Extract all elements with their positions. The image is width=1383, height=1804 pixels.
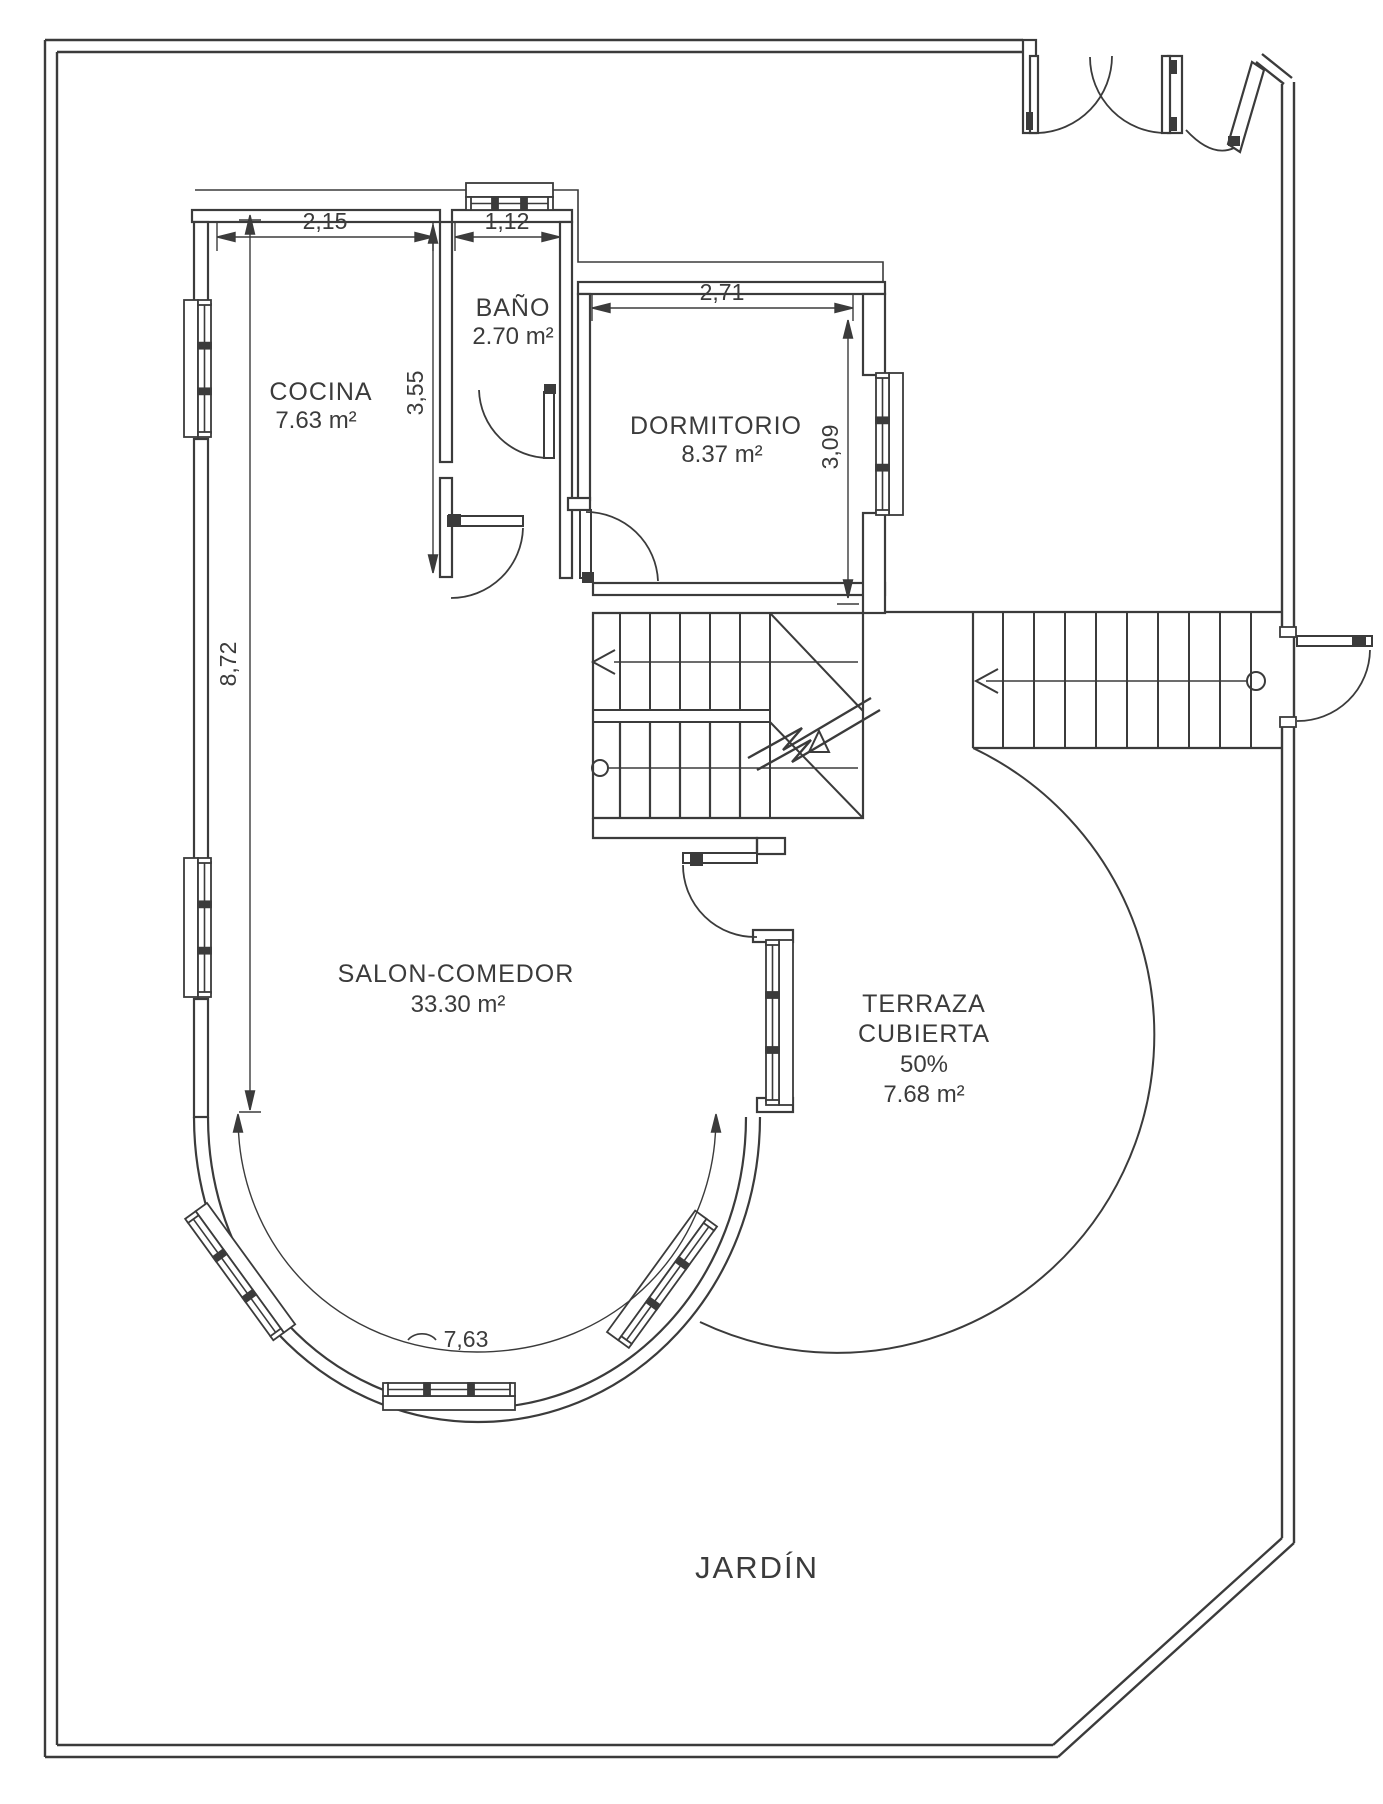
- window-bano-north: [466, 183, 553, 210]
- label-salon: SALON-COMEDOR: [338, 960, 575, 988]
- window-bay-center: [383, 1383, 515, 1410]
- exterior-stair-circle: [1247, 672, 1265, 690]
- dormitorio-door-swing: [586, 512, 658, 581]
- wall-dorm-east-2: [863, 513, 885, 613]
- label-cocina-area: 7.63 m²: [275, 407, 356, 434]
- floor-plan-page: COCINA 7.63 m² BAÑO 2.70 m² DORMITORIO 8…: [0, 0, 1383, 1804]
- stair-break-line-2: [757, 710, 880, 770]
- terraza-door-swing: [683, 865, 757, 937]
- bano-door-swing: [479, 390, 549, 458]
- wall-hall-step: [593, 818, 757, 852]
- wall-west-2: [194, 439, 208, 860]
- wall-jamb-terraza-door: [757, 838, 785, 854]
- window-dormitorio-east: [876, 373, 903, 515]
- dim-cocina-depth: 3,55: [402, 371, 428, 416]
- window-salon-east: [766, 940, 793, 1105]
- exterior-stair: [885, 612, 1282, 748]
- dormitorio-door-leaf: [580, 510, 591, 578]
- label-bano-area: 2.70 m²: [472, 323, 553, 350]
- hall-door-swing: [451, 528, 523, 598]
- boundary-door-swing: [1297, 650, 1370, 721]
- floor-plan-canvas: COCINA 7.63 m² BAÑO 2.70 m² DORMITORIO 8…: [0, 0, 1383, 1804]
- bano-door-leaf: [544, 392, 554, 458]
- wall-dorm-east-1: [863, 294, 885, 375]
- dim-cocina-width: 2,15: [303, 208, 348, 234]
- dim-salon-depth: 8,72: [215, 642, 241, 687]
- stair-direction-arrowhead: [593, 650, 615, 674]
- window-salon-west: [184, 858, 211, 997]
- label-salon-area: 33.30 m²: [411, 991, 506, 1018]
- label-dormitorio-area: 8.37 m²: [681, 441, 762, 468]
- plot-boundary: [45, 40, 1296, 1757]
- wall-cocina-east-1: [440, 222, 452, 462]
- dim-bano-width: 1,12: [485, 208, 530, 234]
- label-dormitorio: DORMITORIO: [630, 412, 802, 440]
- label-bano: BAÑO: [476, 293, 551, 322]
- windows: [184, 183, 903, 1410]
- dim-dormitorio-depth: 3,09: [817, 425, 843, 470]
- gate-swing-left: [1038, 56, 1112, 133]
- entry-gate: [1023, 40, 1264, 152]
- wall-west-3: [194, 999, 208, 1117]
- label-terraza-3: 50%: [900, 1051, 948, 1078]
- wall-cocina-east-2: [440, 478, 452, 577]
- dim-bay-arc: 7,63: [444, 1326, 489, 1352]
- wall-dorm-south: [593, 583, 885, 595]
- wall-dorm-west: [578, 294, 590, 500]
- interior-stair: [592, 613, 880, 818]
- label-cocina: COCINA: [269, 378, 372, 406]
- label-jardin: JARDÍN: [695, 1550, 819, 1585]
- gate-swing-side: [1186, 130, 1234, 151]
- stair-start-circle: [592, 760, 608, 776]
- dim-dormitorio-width: 2,71: [700, 279, 745, 305]
- label-terraza-2: CUBIERTA: [858, 1020, 990, 1048]
- wall-bano-east: [560, 222, 572, 578]
- wall-step-cap: [568, 498, 590, 510]
- arc-length-symbol: [408, 1334, 436, 1340]
- window-bay-left: [185, 1203, 295, 1340]
- window-cocina-west: [184, 300, 211, 437]
- gate-leaf-right: [1162, 56, 1170, 133]
- label-terraza-4: 7.68 m²: [883, 1081, 964, 1108]
- wall-west-1: [194, 222, 208, 302]
- label-terraza-1: TERRAZA: [862, 990, 986, 1018]
